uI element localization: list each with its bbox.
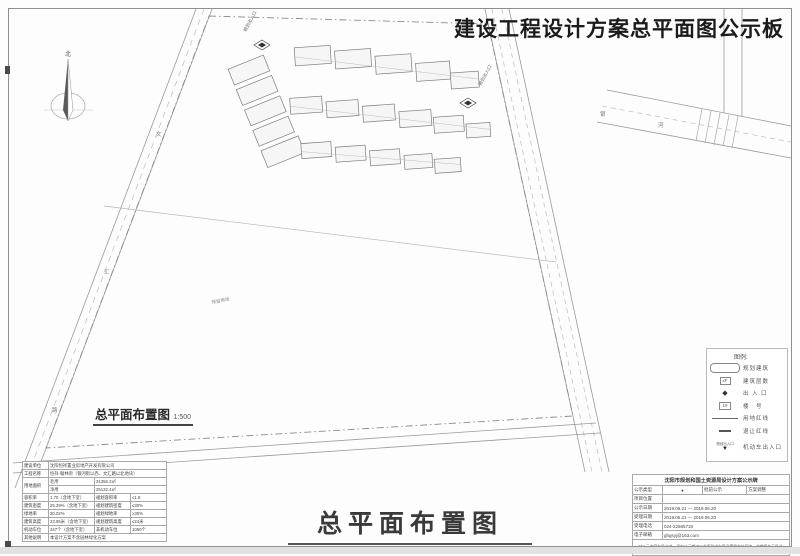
info-cell: 1.70（含地下室） xyxy=(49,494,95,502)
legend-item-setback-line: 退让红线 xyxy=(707,425,787,438)
notice-cell: 2019.05.21 — 2019.06.20 xyxy=(663,513,790,522)
parcel-divider xyxy=(104,206,556,262)
info-cell: 净用 xyxy=(49,486,95,494)
north-label: 北 xyxy=(65,50,71,58)
info-cell: 1050个 xyxy=(131,526,167,534)
crosswalk-hatch xyxy=(696,109,738,148)
table-row: 容积率 1.70（含地下室） 规划容积率 ≤1.8 xyxy=(23,494,167,502)
info-cell: ≥30% xyxy=(131,510,167,518)
table-row: 绿地率 30.02% 规划绿地率 ≥30% xyxy=(23,510,167,518)
table-row: 受理日期 2019.05.21 — 2019.06.20 xyxy=(633,513,790,522)
info-cell: 非机动车位 xyxy=(95,526,131,534)
road-char: 银 xyxy=(600,110,606,118)
info-cell: 工程名称 xyxy=(23,470,49,478)
drawing-scale-ratio: 1:500 xyxy=(174,414,192,421)
legend-item-red-line: 用地红线 xyxy=(707,412,787,425)
legend-item-building-number: 1# 楼 号 xyxy=(707,400,787,413)
table-row: 建筑密度 25.29%（含地下室） 规划建筑密度 ≤30% xyxy=(23,502,167,510)
info-cell: 毛用 xyxy=(49,478,95,486)
info-cell: ≤1.8 xyxy=(131,494,167,502)
sheet-title: 总平面布置图 xyxy=(288,504,532,545)
north-needle-dark xyxy=(63,59,68,121)
table-row: 用地面积 毛用 31356.3㎡ xyxy=(23,478,167,486)
notice-cell: ● xyxy=(663,486,703,495)
building-outline-icon xyxy=(707,363,743,373)
info-cell: 23.95米（含地下室） xyxy=(49,518,95,526)
page-edge-shade xyxy=(0,547,800,554)
notice-cell: 024-22565718 xyxy=(663,522,790,531)
project-info-table: 建设单位 沈阳恒祥置业房地产开发有限公司 工程名称 恒祥·翰林府（银河街以西、文… xyxy=(22,461,167,542)
info-cell: 31356.3㎡ xyxy=(95,478,167,486)
legend-item-building: 规划建筑 xyxy=(707,362,787,375)
entrance-diamond-icon: ◆ xyxy=(707,390,743,397)
north-needle-light xyxy=(68,59,73,121)
road-char: 汇 xyxy=(104,268,110,276)
vehicle-entrance-arrow-icon: 规划出入口 ▼ xyxy=(707,442,743,452)
notice-cell: 受理电话 xyxy=(633,522,663,531)
right-road xyxy=(485,9,609,472)
info-cell: 恒祥·翰林府（银河街以西、文汇路以北地块） xyxy=(49,470,167,478)
notice-cell: 2019.05.21 — 2019.06.20 xyxy=(663,504,790,513)
entrance-label-1: 规划出入口 xyxy=(242,10,259,33)
info-cell: 建筑高度 xyxy=(23,518,49,526)
info-cell: 沈阳恒祥置业房地产开发有限公司 xyxy=(49,462,167,470)
road-char: 文 xyxy=(156,130,162,138)
legend-item-entrance: ◆ 出 入 口 xyxy=(707,387,787,400)
info-cell: 347个（含地下室） xyxy=(49,526,95,534)
parcel-boundary xyxy=(46,16,573,448)
notice-header: 沈阳市规划和国土资源局设计方案公示牌 xyxy=(633,475,790,486)
info-cell: 规划建筑密度 xyxy=(95,502,131,510)
table-row: 其他说明 本设计方案不含园林绿化方案 xyxy=(23,534,167,542)
floor-count-icon: xF xyxy=(707,377,743,385)
legend-item-vehicle-entrance: 规划出入口 ▼ 机动车出入口 xyxy=(707,437,787,457)
info-cell: 25132.4㎡ xyxy=(95,486,167,494)
building-number-icon: 1# xyxy=(707,402,743,410)
notice-cell: 批前公示 xyxy=(703,486,747,495)
parcel-label: 预留用地 xyxy=(211,295,231,306)
notice-cell: 受理日期 xyxy=(633,513,663,522)
notice-cell: 电子邮箱 xyxy=(633,531,663,540)
north-arrow: 北 xyxy=(42,48,96,138)
info-cell: 机动车位 xyxy=(23,526,49,534)
notice-cell: ghgsyj@163.com xyxy=(663,531,790,540)
notice-cell: 公示类型 xyxy=(633,486,663,495)
info-cell: 建设单位 xyxy=(23,462,49,470)
table-row: 项目位置 xyxy=(633,495,790,504)
table-row: 建筑高度 23.95米（含地下室） 规划建筑高度 ≤24米 xyxy=(23,518,167,526)
table-row: 受理电话 024-22565718 xyxy=(633,522,790,531)
info-cell: 绿地率 xyxy=(23,510,49,518)
entrance-label-2: 规划出入口 xyxy=(477,64,494,87)
registration-mark xyxy=(5,66,10,74)
legend-panel: 图例: 规划建筑 xF 建筑层数 ◆ 出 入 口 1# 楼 号 用地红线 退让红… xyxy=(706,348,788,462)
building-rows-main xyxy=(286,35,493,183)
table-row: 沈阳市规划和国土资源局设计方案公示牌 xyxy=(633,475,790,486)
info-cell: 规划容积率 xyxy=(95,494,131,502)
board-title: 建设工程设计方案总平面图公示板 xyxy=(454,13,784,43)
info-cell: 用地面积 xyxy=(23,478,49,494)
info-cell: ≤30% xyxy=(131,502,167,510)
table-row: 机动车位 347个（含地下室） 非机动车位 1050个 xyxy=(23,526,167,534)
notice-cell: 项目位置 xyxy=(633,495,663,504)
info-cell: ≤24米 xyxy=(131,518,167,526)
table-row: 电子邮箱 ghgsyj@163.com xyxy=(633,531,790,540)
road-char: 河 xyxy=(658,121,664,129)
drawing-label-text: 总平面布置图 xyxy=(95,408,170,422)
info-cell: 规划建筑高度 xyxy=(95,518,131,526)
notice-cell xyxy=(663,495,790,504)
info-cell: 本设计方案不含园林绿化方案 xyxy=(49,534,167,542)
boundary-line-icon xyxy=(707,418,743,419)
notice-cell: 公示日期 xyxy=(633,504,663,513)
entrance-marker-1: 规划出入口 xyxy=(242,10,270,50)
public-notice-table: 沈阳市规划和国土资源局设计方案公示牌 公示类型 ● 批前公示 方案调整 项目位置… xyxy=(632,474,790,556)
table-row: 建设单位 沈阳恒祥置业房地产开发有限公司 xyxy=(23,462,167,470)
info-cell: 30.02% xyxy=(49,510,95,518)
road-char: 路 xyxy=(52,406,58,414)
setback-line-icon xyxy=(707,430,743,432)
table-row: 公示日期 2019.05.21 — 2019.06.20 xyxy=(633,504,790,513)
table-row: 工程名称 恒祥·翰林府（银河街以西、文汇路以北地块） xyxy=(23,470,167,478)
info-cell: 容积率 xyxy=(23,494,49,502)
drawing-scale-label: 总平面布置图 1:500 xyxy=(93,404,193,426)
info-cell: 建筑密度 xyxy=(23,502,49,510)
info-cell: 其他说明 xyxy=(23,534,49,542)
table-row: 公示类型 ● 批前公示 方案调整 xyxy=(633,486,790,495)
info-cell: 25.29%（含地下室） xyxy=(49,502,95,510)
notice-cell: 方案调整 xyxy=(747,486,790,495)
building-cluster xyxy=(228,35,493,183)
legend-item-floors: xF 建筑层数 xyxy=(707,375,787,388)
legend-title: 图例: xyxy=(734,352,787,361)
info-cell: 规划绿地率 xyxy=(95,510,131,518)
